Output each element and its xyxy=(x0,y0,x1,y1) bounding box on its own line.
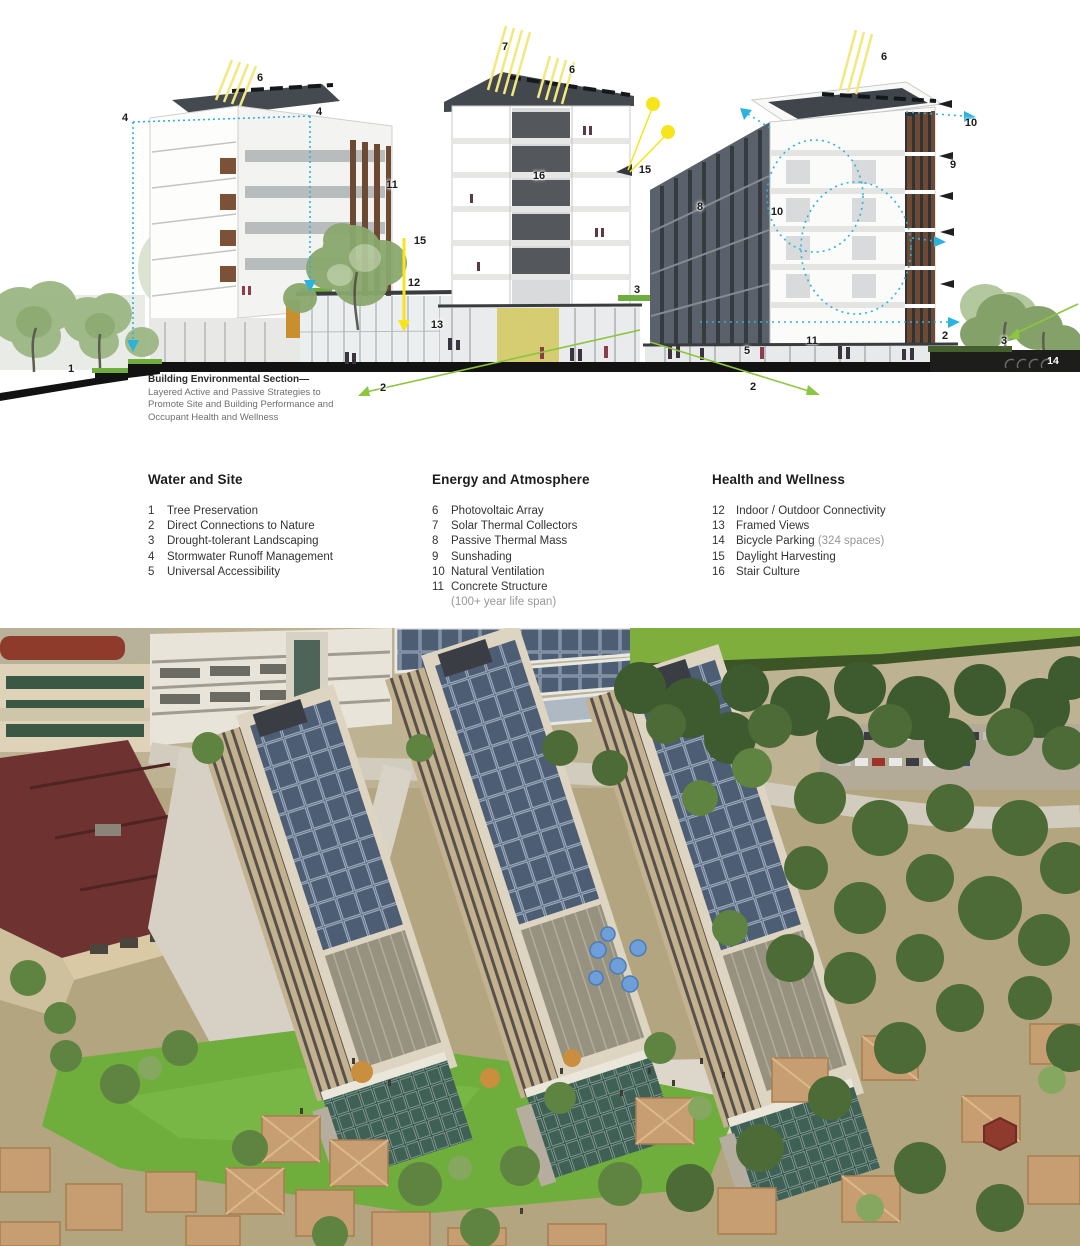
legend-item: 10Natural Ventilation xyxy=(432,565,692,580)
legend-column-water-and-site: Water and Site 1Tree Preservation2Direct… xyxy=(148,472,408,580)
legend-items: 1Tree Preservation2Direct Connections to… xyxy=(148,504,408,580)
legend-item: 6Photovoltaic Array xyxy=(432,504,692,519)
legend-item: 14Bicycle Parking (324 spaces) xyxy=(712,534,1012,549)
legend-heading: Water and Site xyxy=(148,472,408,487)
legend-item: 3Drought-tolerant Landscaping xyxy=(148,534,408,549)
legend-item: 11Concrete Structure xyxy=(432,580,692,595)
caption-line: Promote Site and Building Performance an… xyxy=(148,399,358,412)
legend-items: 12Indoor / Outdoor Connectivity13Framed … xyxy=(712,504,1012,580)
legend-item: 13Framed Views xyxy=(712,519,1012,534)
section-caption: Building Environmental Section— Layered … xyxy=(148,374,358,424)
right-building-section xyxy=(643,82,958,370)
legend-item: 2Direct Connections to Nature xyxy=(148,519,408,534)
gazebo xyxy=(984,1118,1016,1150)
caption-line: Layered Active and Passive Strategies to xyxy=(148,387,358,400)
legend-heading: Energy and Atmosphere xyxy=(432,472,692,487)
legend-heading: Health and Wellness xyxy=(712,472,1012,487)
section-illustration xyxy=(0,0,1080,430)
legend-item: 16Stair Culture xyxy=(712,565,1012,580)
legend-column-health-and-wellness: Health and Wellness 12Indoor / Outdoor C… xyxy=(712,472,1012,580)
legend-item: 8Passive Thermal Mass xyxy=(432,534,692,549)
aerial-photo xyxy=(0,628,1080,1246)
legend-item: 12Indoor / Outdoor Connectivity xyxy=(712,504,1012,519)
magazine-page: 64411151213127616153610981011522314 Buil… xyxy=(0,0,1080,1246)
legend-column-energy-and-atmosphere: Energy and Atmosphere 6Photovoltaic Arra… xyxy=(432,472,692,610)
middle-building-section xyxy=(438,72,642,368)
legend-items: 6Photovoltaic Array7Solar Thermal Collec… xyxy=(432,504,692,610)
legend-item: 5Universal Accessibility xyxy=(148,565,408,580)
caption-line: Occupant Health and Wellness xyxy=(148,412,358,425)
aerial-photo-illustration xyxy=(0,628,1080,1246)
building-environmental-section-diagram: 64411151213127616153610981011522314 Buil… xyxy=(0,0,1080,628)
legend-item: 9Sunshading xyxy=(432,550,692,565)
legend-item-note: (100+ year life span) xyxy=(432,595,692,610)
legend-item: 1Tree Preservation xyxy=(148,504,408,519)
legend-item: 15Daylight Harvesting xyxy=(712,550,1012,565)
legend-item: 4Stormwater Runoff Management xyxy=(148,550,408,565)
legend-item: 7Solar Thermal Collectors xyxy=(432,519,692,534)
caption-title: Building Environmental Section— xyxy=(148,374,358,387)
